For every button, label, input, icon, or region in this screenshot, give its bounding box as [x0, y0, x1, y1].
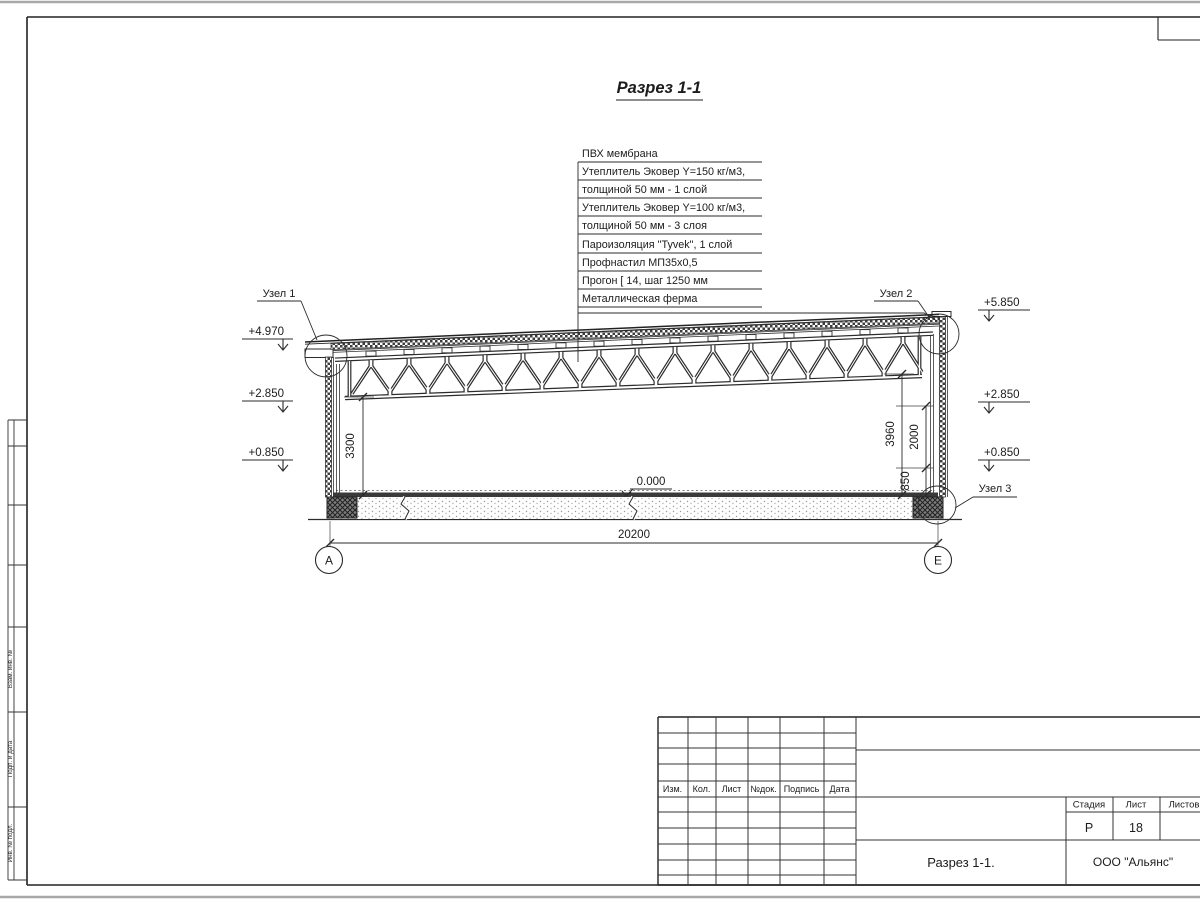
callout-line: толщиной 50 мм - 3 слоя: [582, 220, 707, 232]
title-block: Изм. Кол. Лист №док. Подпись Дата Стадия…: [658, 717, 1200, 885]
elev-right-mid: +2.850: [984, 389, 1020, 401]
section-title: Разрез 1-1: [617, 79, 702, 97]
elev-left-low: +0.850: [249, 447, 285, 459]
callout-line: Профнастил МП35х0,5: [582, 257, 697, 269]
tb-stage-value: Р: [1085, 821, 1093, 835]
callout-line: Утеплитель Эковер Y=150 кг/м3,: [582, 166, 745, 178]
dim-left-height: 3300: [345, 433, 357, 459]
tb-doc-title: Разрез 1-1.: [927, 855, 994, 870]
axis-e: Е: [934, 554, 942, 568]
elev-right-low: +0.850: [984, 447, 1020, 459]
callout-line: Металлическая ферма: [582, 293, 697, 305]
callout-line: ПВХ мембрана: [582, 148, 658, 160]
node-2-label: Узел 2: [880, 288, 913, 300]
elev-left-top: +4.970: [249, 326, 285, 338]
callout-line: Пароизоляция "Tyvek", 1 слой: [582, 239, 732, 251]
tb-sheet-number: 18: [1129, 821, 1143, 835]
paper-edges: [0, 2, 1200, 897]
roof-and-truss: [305, 314, 939, 398]
tb-header-podpis: Подпись: [784, 784, 820, 794]
tb-company: ООО "Альянс": [1093, 855, 1173, 869]
elev-zero: 0.000: [637, 476, 666, 488]
margin-label: Инв. № подл.: [7, 823, 14, 862]
node-3-label: Узел 3: [979, 483, 1012, 495]
tb-header-ndok: №док.: [750, 784, 776, 794]
axis-a: А: [325, 554, 333, 568]
tb-header-data: Дата: [830, 784, 850, 794]
node-1-label: Узел 1: [263, 288, 296, 300]
dim-span: 20200: [618, 529, 650, 541]
margin-label: Подп. и дата: [7, 740, 14, 777]
tb-header-izm: Изм.: [663, 784, 682, 794]
elev-right-top: +5.850: [984, 297, 1020, 309]
dim-right-lower: 850: [900, 471, 912, 490]
dim-right-upper: 2000: [909, 424, 921, 450]
drawing-sheet: Взам. инв. № Подп. и дата Инв. № подл. Р…: [0, 0, 1200, 900]
elev-left-mid: +2.850: [249, 388, 285, 400]
tb-sheets-label: Листов: [1169, 800, 1200, 811]
tb-sheet-label: Лист: [1126, 800, 1147, 811]
tb-stage-label: Стадия: [1073, 800, 1105, 811]
callout-line: Утеплитель Эковер Y=100 кг/м3,: [582, 202, 745, 214]
callout-line: Прогон [ 14, шаг 1250 мм: [582, 275, 708, 287]
tb-header-list: Лист: [722, 784, 742, 794]
tb-header-kol: Кол.: [693, 784, 711, 794]
margin-label: Взам. инв. №: [7, 649, 14, 688]
dim-right-total: 3960: [885, 421, 897, 447]
callout-line: толщиной 50 мм - 1 слой: [582, 184, 707, 196]
